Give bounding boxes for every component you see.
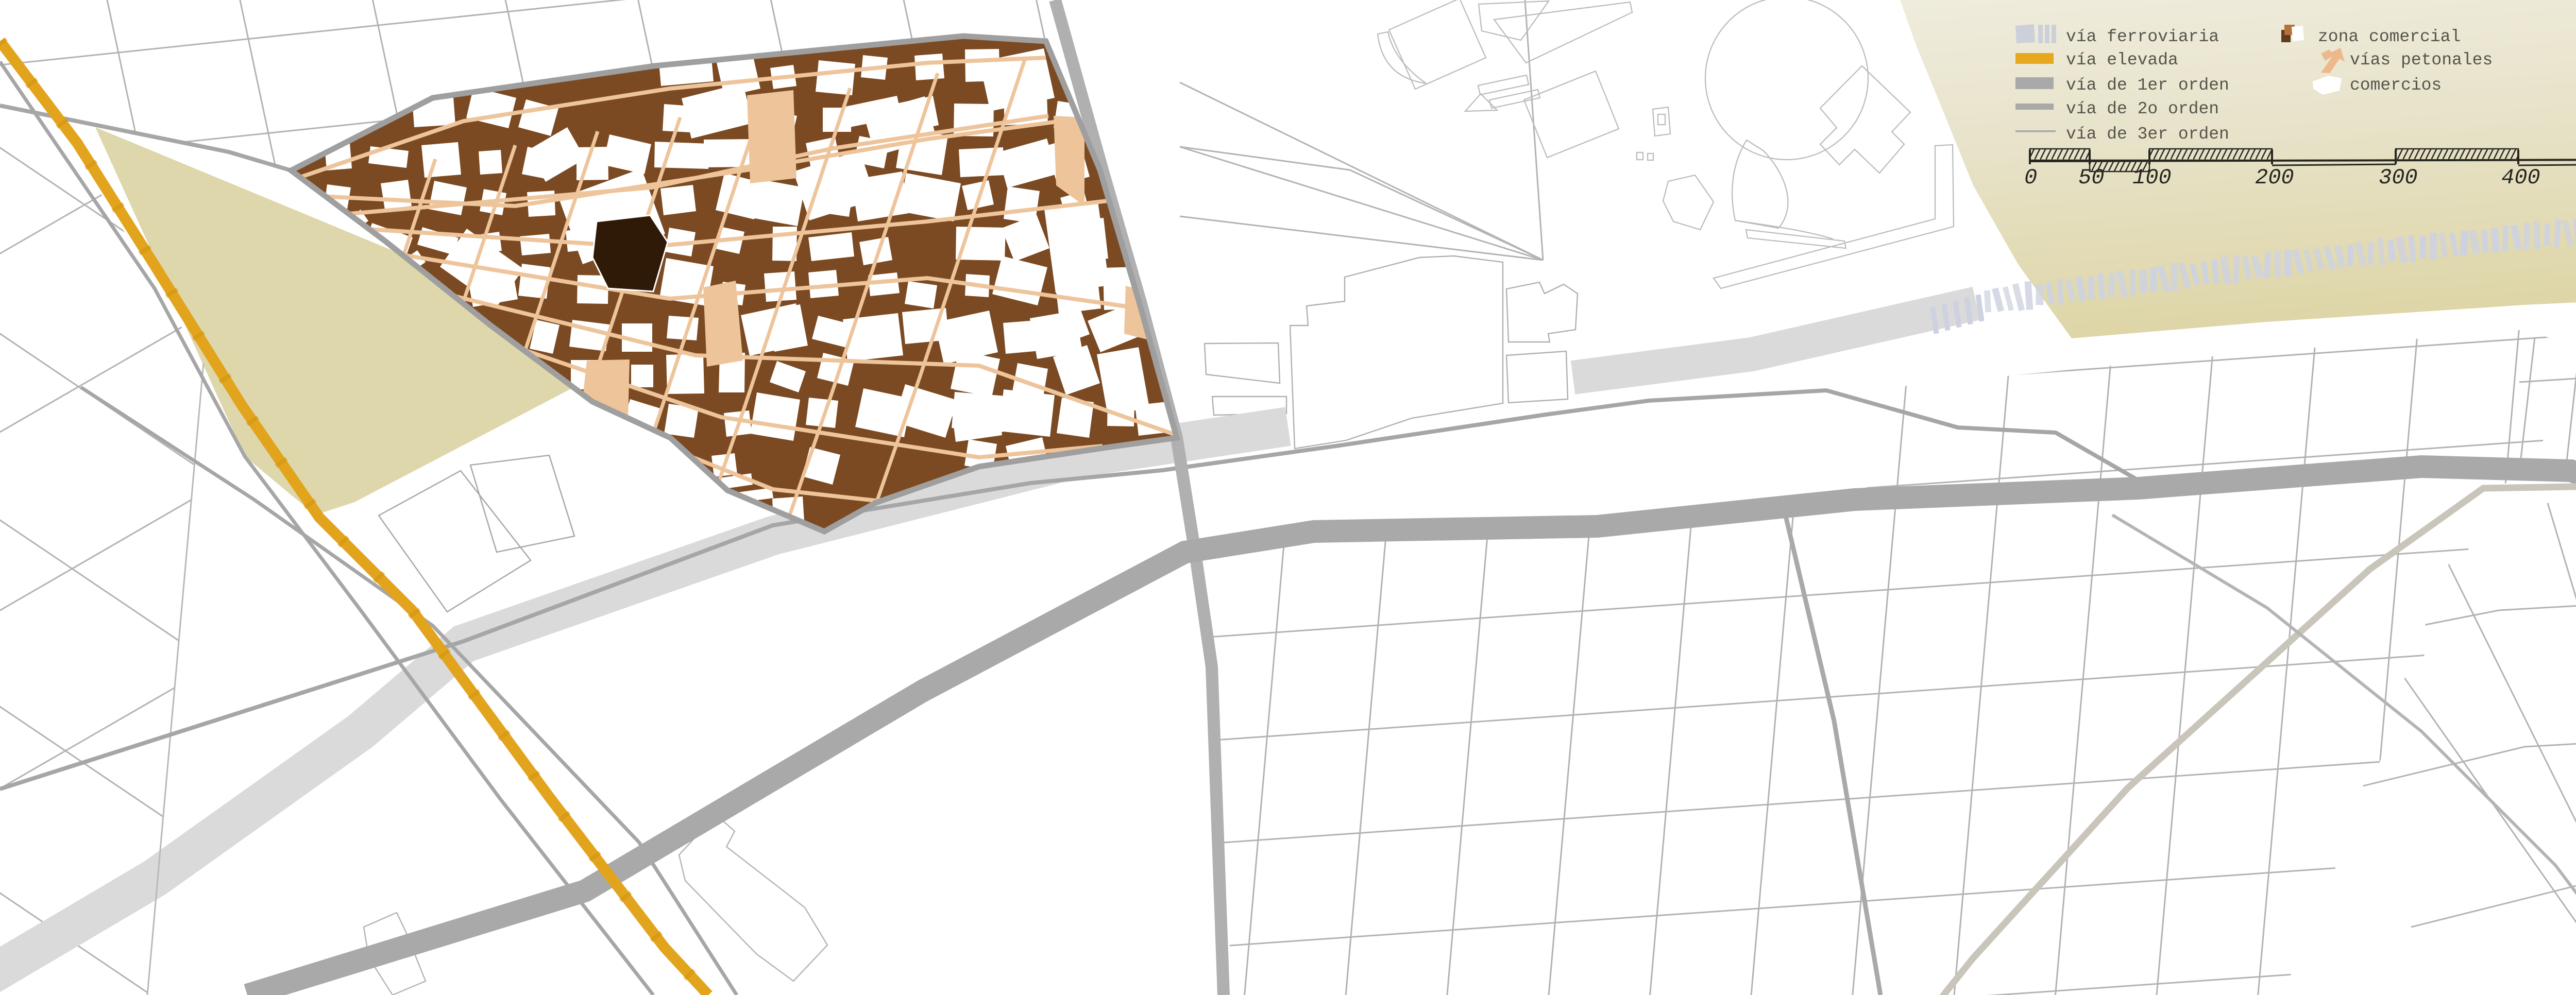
svg-text:0: 0 <box>2024 165 2037 190</box>
svg-text:100: 100 <box>2132 165 2172 190</box>
svg-text:50: 50 <box>2078 165 2104 190</box>
svg-text:vía elevada: vía elevada <box>2066 50 2178 70</box>
svg-text:vía ferroviaria: vía ferroviaria <box>2066 27 2219 46</box>
svg-text:400: 400 <box>2501 165 2540 190</box>
svg-text:comercios: comercios <box>2350 76 2442 95</box>
svg-text:vía de 1er orden: vía de 1er orden <box>2066 76 2229 95</box>
svg-text:vía de 2o orden: vía de 2o orden <box>2066 99 2219 118</box>
svg-text:vías petonales: vías petonales <box>2350 50 2493 70</box>
svg-text:zona comercial: zona comercial <box>2318 27 2461 46</box>
svg-text:300: 300 <box>2379 165 2418 190</box>
svg-text:vía de 3er orden: vía de 3er orden <box>2066 125 2229 144</box>
svg-text:200: 200 <box>2255 165 2294 190</box>
